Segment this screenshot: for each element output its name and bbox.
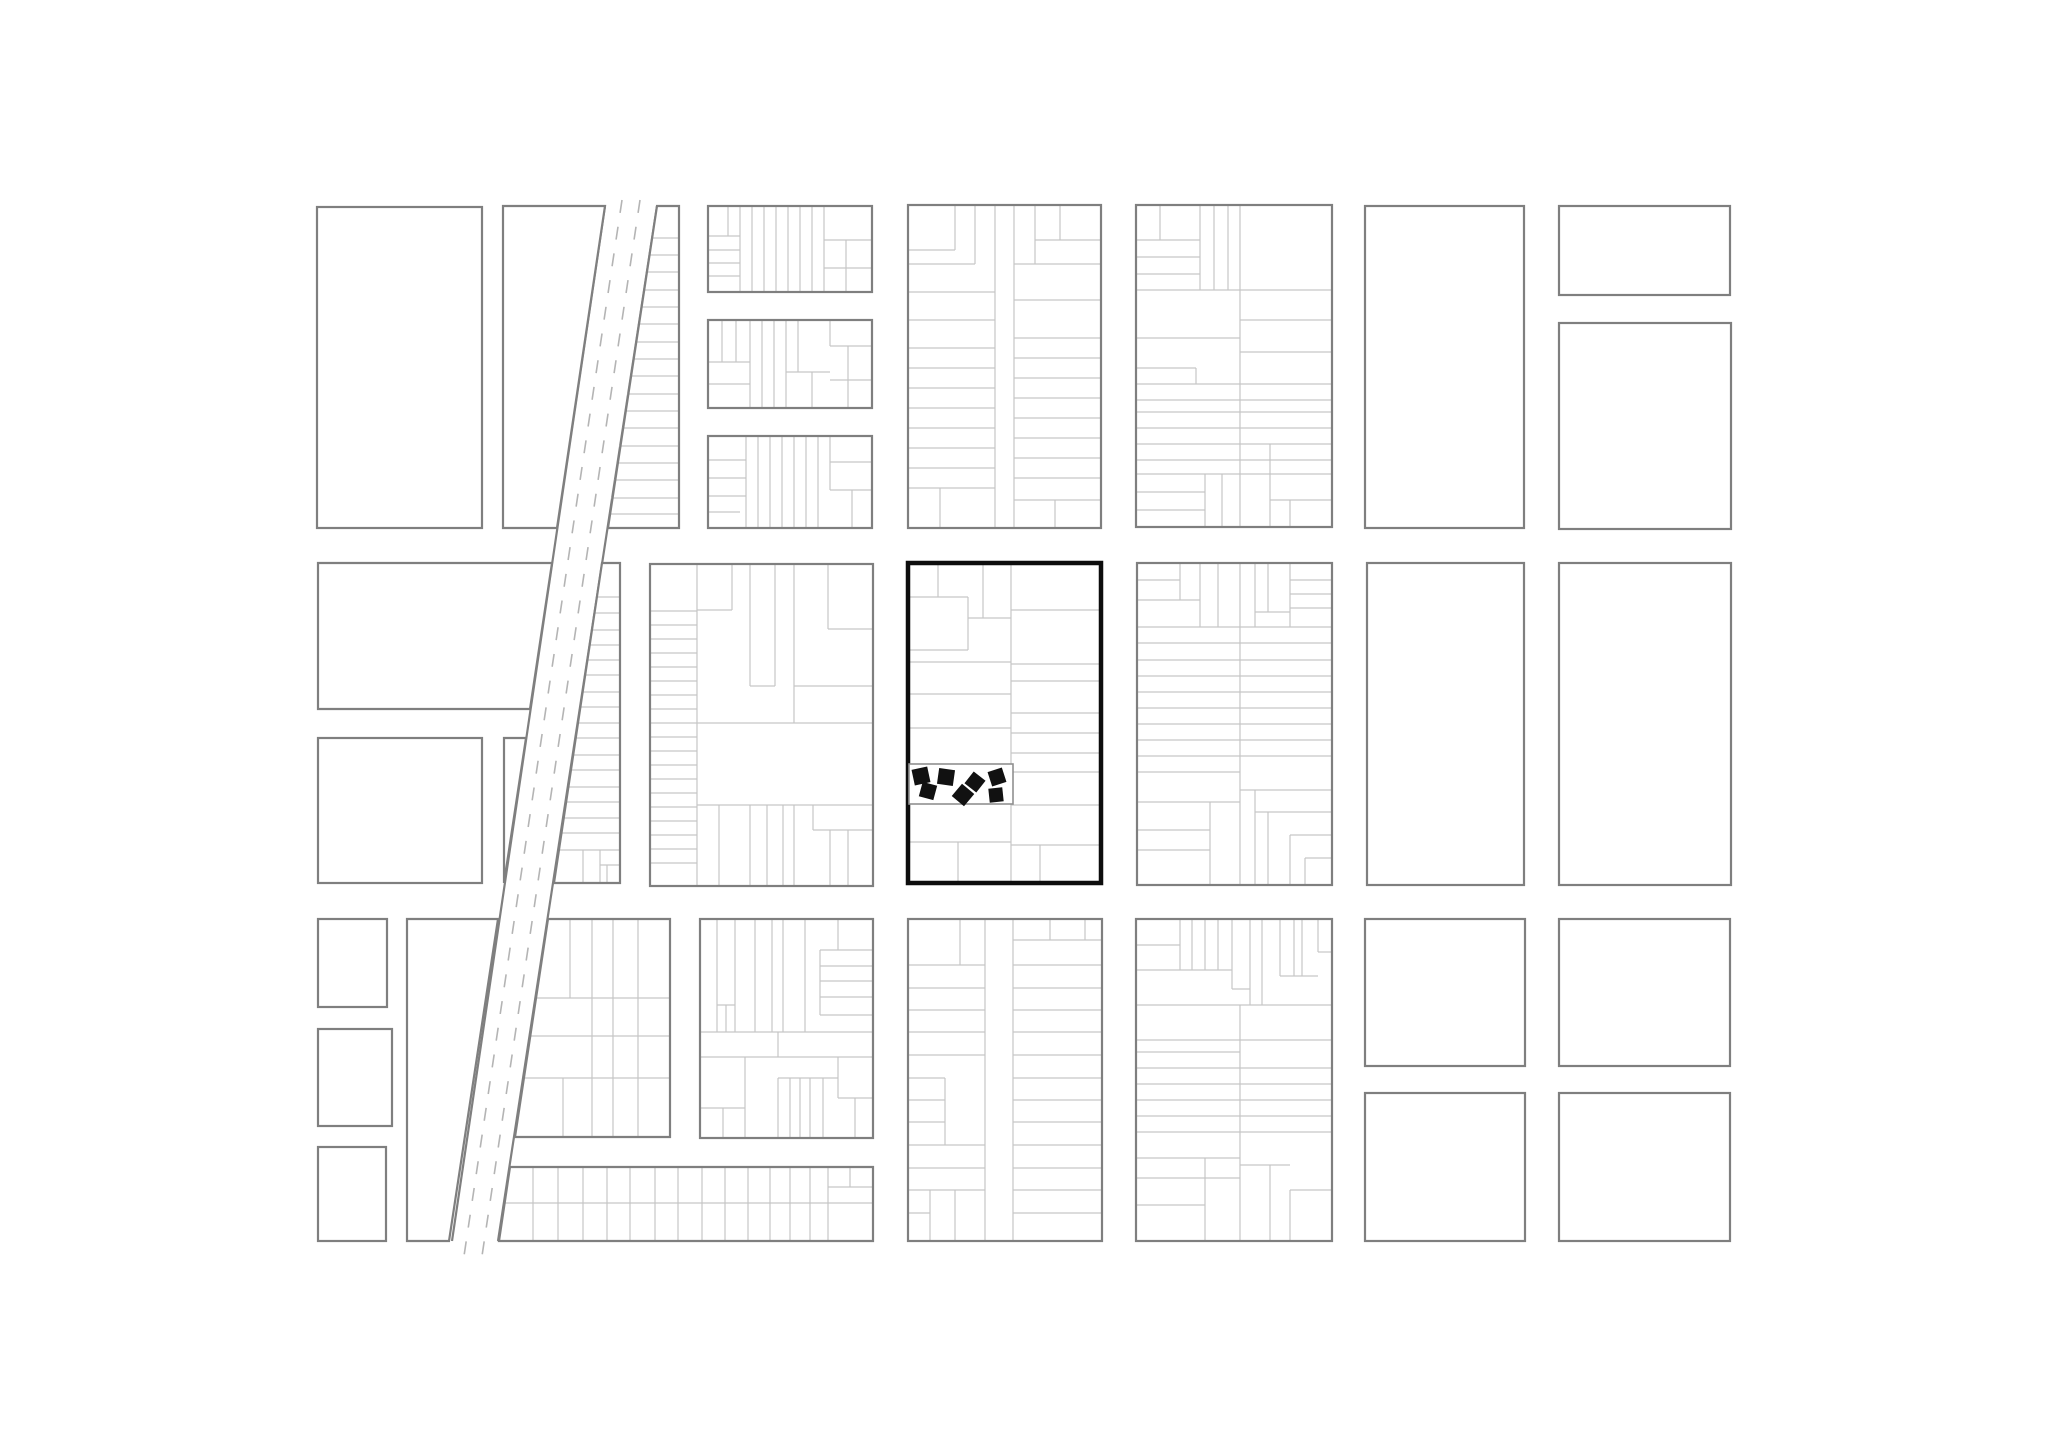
city-block-r1c3-bottom — [708, 436, 872, 528]
city-block-r3c6-top — [1365, 919, 1525, 1066]
block-fill — [1559, 206, 1730, 295]
city-block-r1c5 — [1136, 205, 1332, 527]
city-block-r3c7-bottom — [1559, 1093, 1730, 1241]
site-plan-canvas — [0, 0, 2048, 1448]
city-block-r3c4 — [908, 919, 1102, 1241]
block-fill — [1559, 919, 1730, 1066]
city-block-r1c7-bottom — [1559, 323, 1731, 529]
highlighted-site-block-fill — [908, 563, 1101, 883]
block-fill — [650, 564, 873, 886]
block-fill — [1367, 563, 1524, 885]
city-block-r1c7-top — [1559, 206, 1730, 295]
block-fill — [318, 738, 482, 883]
city-block-r2c7 — [1559, 563, 1731, 885]
block-fill — [318, 1147, 386, 1241]
block-fill — [1559, 323, 1731, 529]
block-fill — [708, 206, 872, 292]
city-block-r1c3-top — [708, 206, 872, 292]
city-block-r1c6 — [1365, 206, 1524, 528]
city-block-r3c3 — [700, 919, 873, 1138]
city-block-r3c7-top — [1559, 919, 1730, 1066]
block-fill — [1365, 919, 1525, 1066]
city-block-r3c6-bottom — [1365, 1093, 1525, 1241]
block-fill — [499, 1167, 873, 1241]
city-block-r1c1 — [317, 207, 482, 528]
block-fill — [1559, 563, 1731, 885]
block-fill — [317, 207, 482, 528]
city-block-r3c5 — [1136, 919, 1332, 1241]
city-block-r1c3-mid — [708, 320, 872, 408]
block-fill — [908, 205, 1101, 528]
block-fill — [318, 919, 387, 1007]
block-fill — [318, 563, 552, 709]
project-site — [909, 764, 1013, 806]
block-fill — [708, 436, 872, 528]
city-block-r3c1-c — [318, 1147, 386, 1241]
building-footprint — [937, 768, 955, 786]
site-plan-page — [0, 0, 2048, 1448]
building-footprint — [912, 767, 931, 786]
city-block-r3c1-b — [318, 1029, 392, 1126]
block-fill — [1559, 1093, 1730, 1241]
block-fill — [1136, 205, 1332, 527]
city-block-r3-rowhouse-strip — [499, 1167, 873, 1241]
block-fill — [1365, 206, 1524, 528]
city-block-r3c1-a — [318, 919, 387, 1007]
block-fill — [318, 1029, 392, 1126]
city-block-r2c5 — [1137, 563, 1332, 885]
city-block-r2c1-upper — [318, 563, 552, 709]
block-fill — [908, 919, 1102, 1241]
city-block-r1c4 — [908, 205, 1101, 528]
block-fill — [1365, 1093, 1525, 1241]
city-block-site-block — [908, 563, 1101, 883]
city-block-r2c6 — [1367, 563, 1524, 885]
city-block-r2c1-lower — [318, 738, 482, 883]
building-footprint — [988, 787, 1003, 802]
city-block-r2c3 — [650, 564, 873, 886]
